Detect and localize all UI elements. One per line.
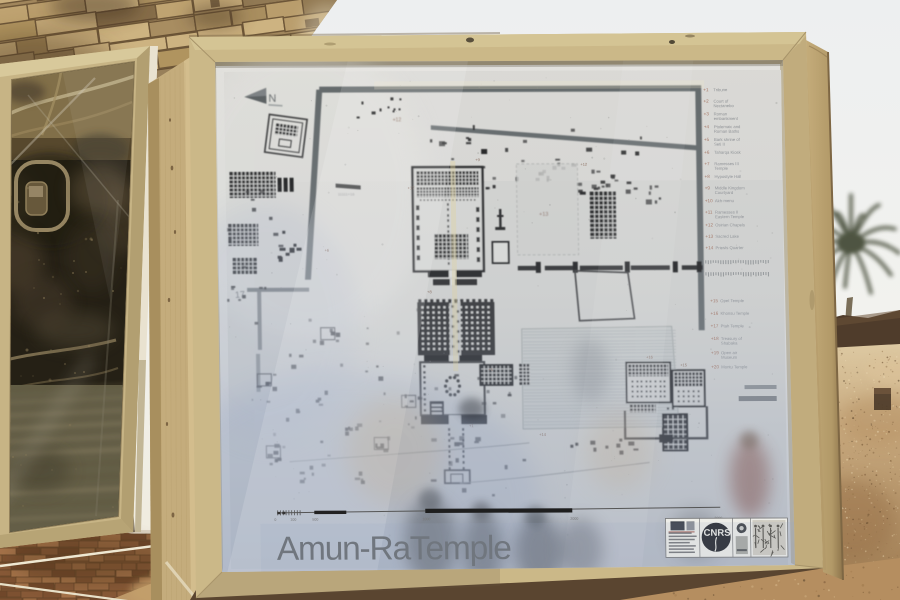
svg-text:1000: 1000 — [422, 517, 430, 521]
svg-text:500: 500 — [312, 518, 318, 522]
svg-text:0: 0 — [274, 518, 276, 522]
svg-text:100: 100 — [290, 518, 296, 522]
svg-text:2000: 2000 — [570, 517, 578, 521]
